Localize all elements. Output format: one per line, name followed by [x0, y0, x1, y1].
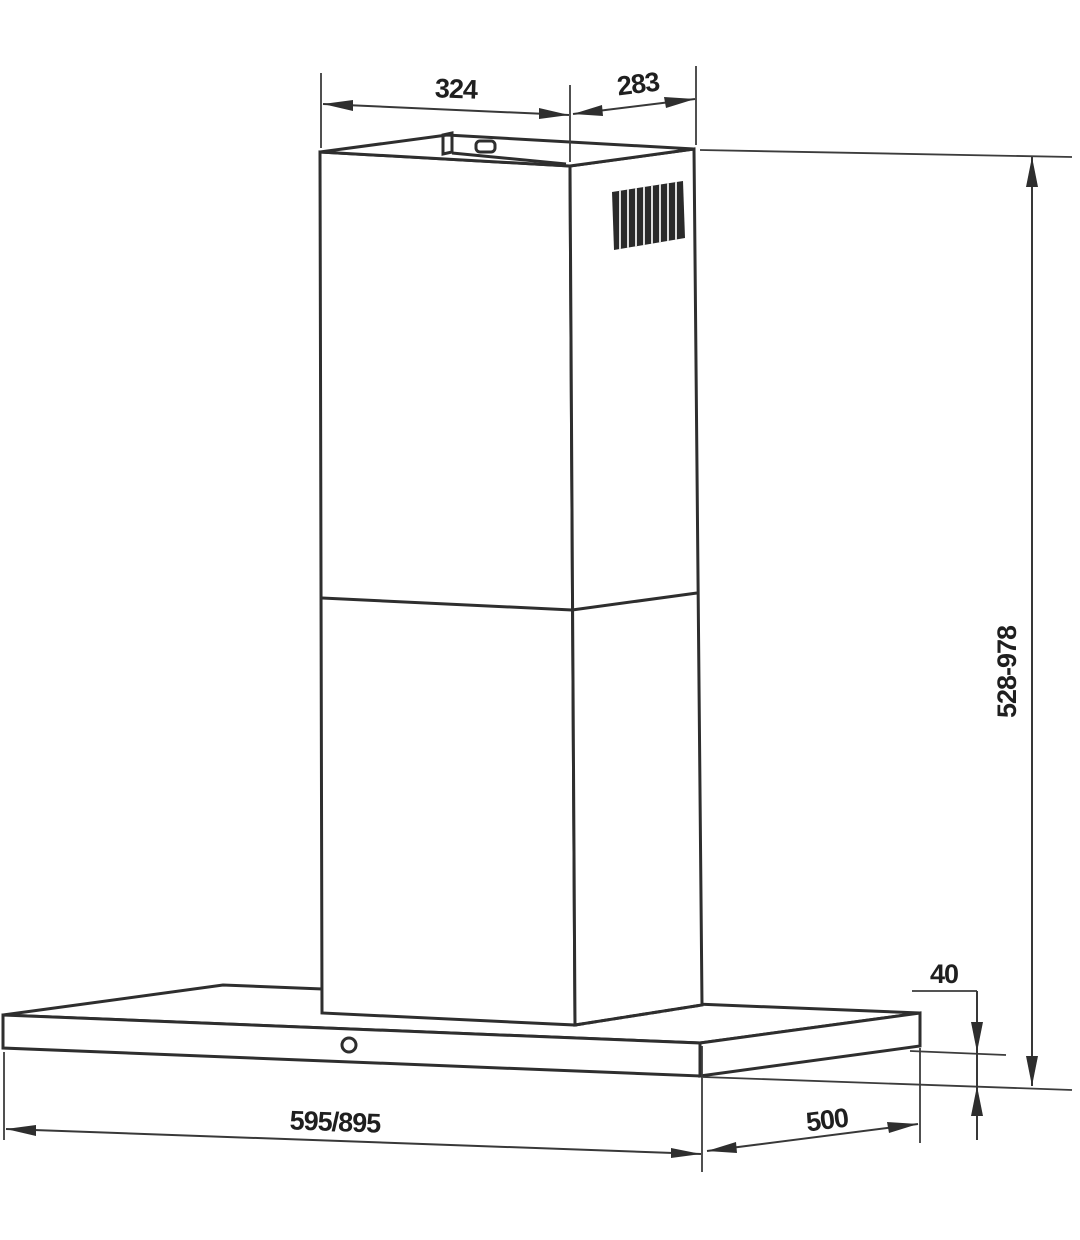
ext-line-top — [700, 150, 1072, 157]
chimney-side-face — [570, 149, 702, 1025]
arrowhead-down — [1026, 1056, 1038, 1086]
technical-drawing: 324 283 528-978 40 595/895 — [0, 0, 1080, 1240]
dimension-chimney-top-depth: 283 — [573, 66, 696, 145]
ext-line-upper — [910, 1051, 1006, 1055]
hood-chimney — [320, 133, 702, 1025]
ext-line-bottom — [703, 1077, 1072, 1090]
dim-label-top-width: 324 — [434, 73, 478, 104]
dimension-height-range: 528-978 — [700, 150, 1072, 1090]
dim-label-body-depth: 500 — [804, 1103, 849, 1138]
dim-label-panel-height: 40 — [930, 959, 958, 989]
arrowhead-right — [539, 108, 569, 119]
arrowhead-left — [323, 100, 353, 111]
dim-label-body-width: 595/895 — [289, 1105, 382, 1138]
dim-label-top-depth: 283 — [615, 66, 661, 101]
arrowhead-up — [1026, 157, 1038, 187]
chimney-front-face — [320, 152, 575, 1025]
range-hood-diagram-canvas: 324 283 528-978 40 595/895 — [0, 0, 1080, 1240]
arrowhead-down — [971, 1022, 983, 1052]
dim-line-324 — [323, 104, 569, 115]
arrowhead-up — [971, 1086, 983, 1116]
dim-label-height-range: 528-978 — [992, 625, 1022, 718]
vent-grille-panel — [612, 181, 685, 250]
dimension-base-panel-height: 40 — [910, 959, 1006, 1140]
arrowhead-left — [6, 1125, 36, 1136]
